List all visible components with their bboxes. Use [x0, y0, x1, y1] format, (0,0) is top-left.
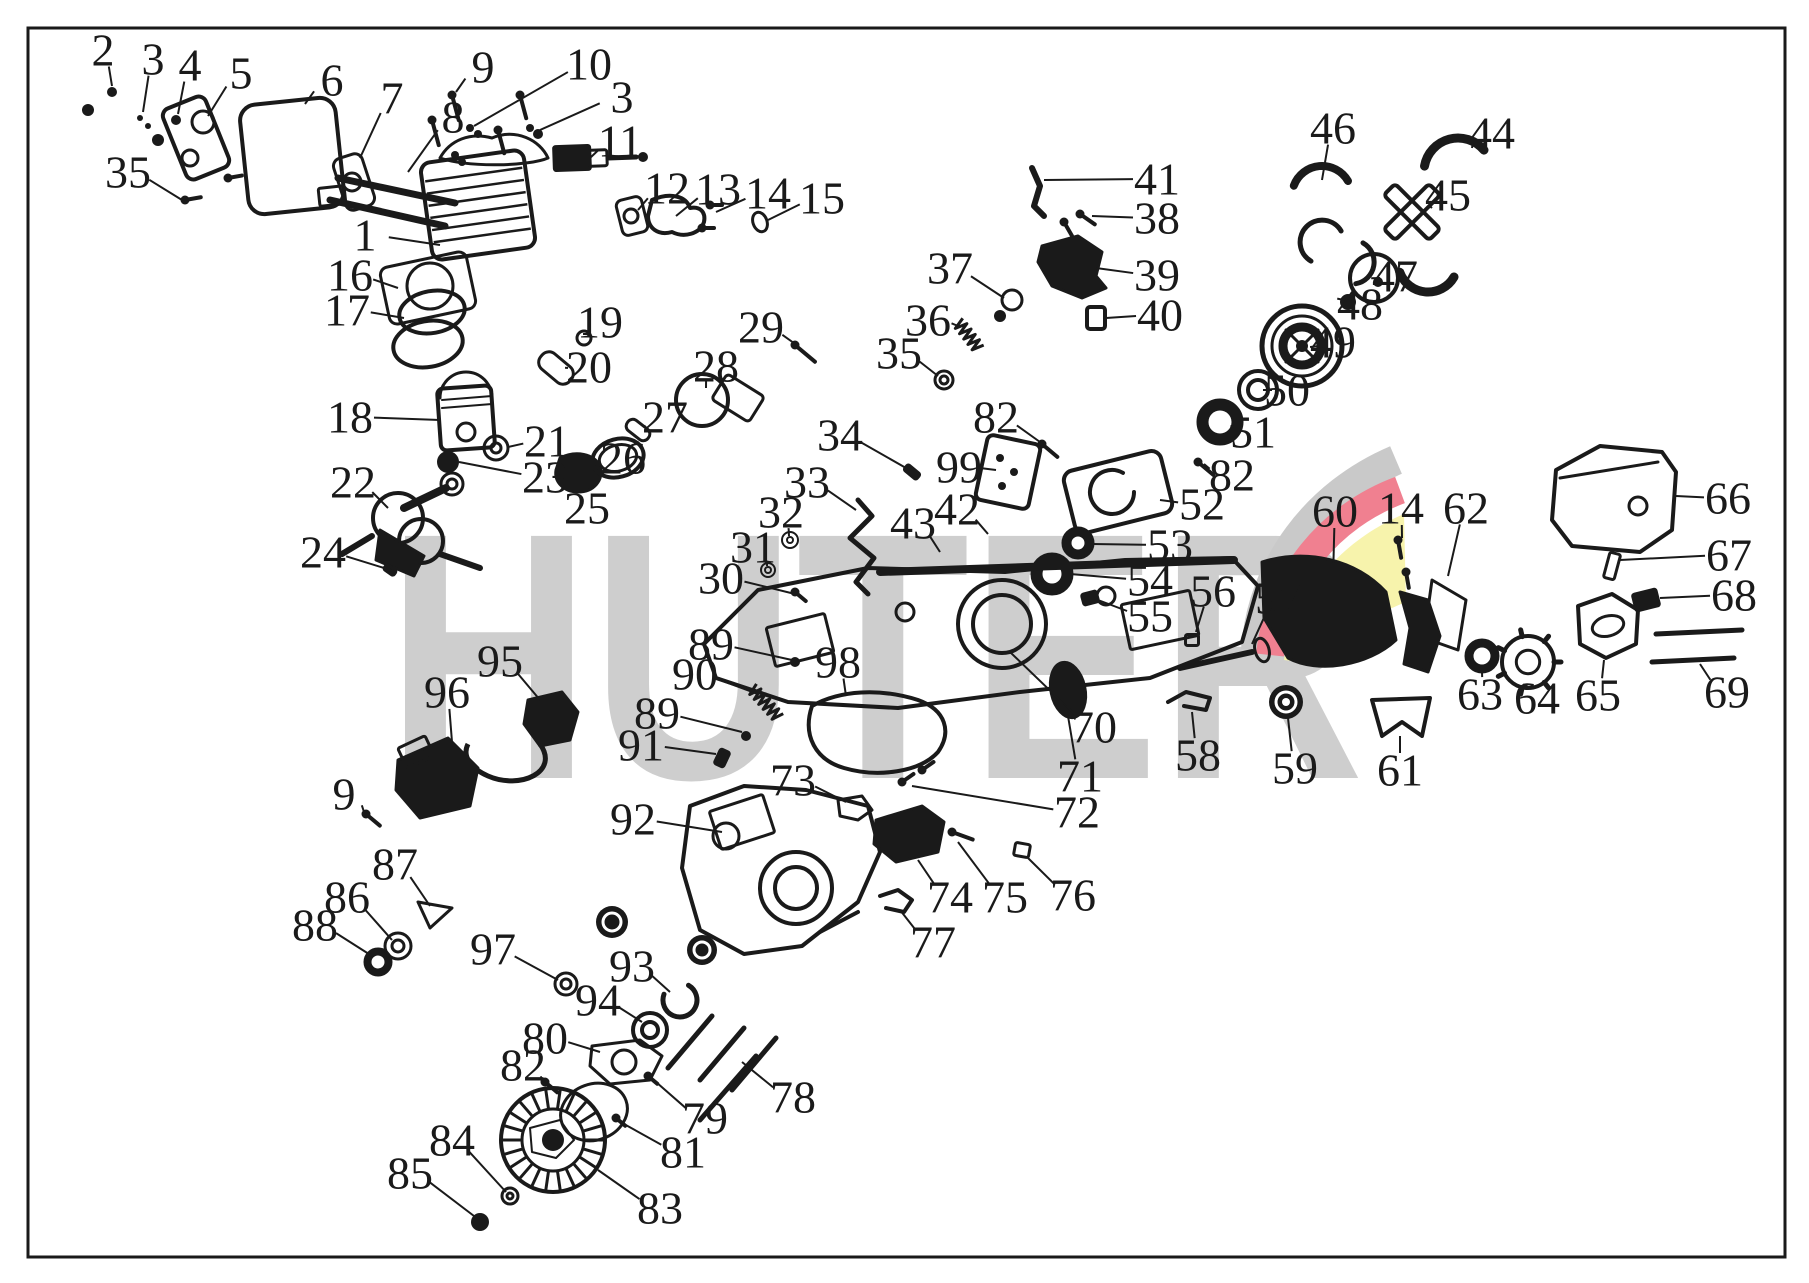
- grommet-35: [935, 371, 953, 389]
- washer-86-inner: [392, 940, 404, 952]
- leader-line-53: [1092, 544, 1146, 545]
- part-label-35: 35: [105, 147, 151, 198]
- screw-14d-head: [1402, 568, 1411, 577]
- part-label-29: 29: [738, 302, 784, 353]
- leader-line-9: [456, 79, 465, 92]
- part-label-64: 64: [1514, 673, 1560, 724]
- part-label-13: 13: [695, 164, 741, 215]
- flywheel-83-fins: [509, 1112, 526, 1123]
- cylinder-fin: [425, 168, 522, 182]
- leader-line-81: [624, 1124, 661, 1145]
- part-label-49: 49: [1310, 317, 1356, 368]
- sprocket-64-hub: [1516, 650, 1539, 673]
- part-label-74: 74: [927, 872, 973, 923]
- screw-81-head: [612, 1114, 621, 1123]
- part-label-15: 15: [799, 173, 845, 224]
- piston-18-groove2: [442, 404, 492, 408]
- part-label-10: 10: [566, 39, 612, 90]
- flywheel-83-fins: [566, 1169, 574, 1187]
- part-label-7: 7: [381, 73, 404, 124]
- part-label-61: 61: [1377, 745, 1423, 796]
- leader-line-21: [508, 444, 523, 447]
- part-label-34: 34: [817, 410, 863, 461]
- part-label-3: 3: [142, 34, 165, 85]
- leader-line-41: [1044, 179, 1133, 180]
- pin-30-head: [791, 588, 800, 597]
- part-label-14b: 14: [1378, 483, 1424, 534]
- part-label-11: 11: [598, 116, 642, 167]
- piston-18-groove1: [442, 396, 492, 400]
- leader-line-9b: [362, 805, 364, 812]
- part-label-19: 19: [577, 297, 623, 348]
- part-label-96: 96: [424, 667, 470, 718]
- sprocket-64-tooth: [1521, 630, 1523, 637]
- fuel-tank-66-seam: [1560, 462, 1658, 478]
- flywheel-83-fins: [584, 1149, 603, 1155]
- flywheel-83-hub: [542, 1129, 564, 1151]
- brake-lever-right: [1400, 592, 1440, 672]
- part-label-9b: 9: [333, 769, 356, 820]
- choke-lever-41: [1032, 168, 1044, 216]
- washer-extra1: [451, 151, 459, 159]
- part-label-41: 41: [1134, 154, 1180, 205]
- flywheel-83-fins: [519, 1164, 532, 1179]
- seal-88-inner: [372, 956, 384, 968]
- leader-line-38: [1092, 216, 1133, 217]
- leader-line-3b: [540, 103, 600, 130]
- throttle-39: [1038, 236, 1106, 298]
- part-label-56: 56: [1190, 566, 1236, 617]
- clip-77: [880, 890, 912, 912]
- bushing-40: [1087, 307, 1105, 329]
- bolt-69b: [1652, 658, 1734, 662]
- washer-63-inner: [1474, 648, 1490, 664]
- leader-line-68: [1660, 596, 1710, 598]
- flywheel-83-fins: [580, 1157, 597, 1168]
- screw-79-head: [644, 1072, 653, 1081]
- part-label-72: 72: [1054, 787, 1100, 838]
- muffler-cover-hole-bottom: [182, 150, 198, 166]
- parts-diagram: HUTER12334567899101112131414151617181920…: [0, 0, 1809, 1283]
- part-label-22: 22: [330, 457, 376, 508]
- washer-94-inner: [642, 1022, 658, 1038]
- part-label-91: 91: [618, 720, 664, 771]
- part-label-27: 27: [642, 392, 688, 443]
- bolt-78a: [668, 1016, 712, 1068]
- worm-59-hub: [1282, 698, 1290, 706]
- spring-36: [955, 318, 983, 350]
- part-label-20: 20: [566, 342, 612, 393]
- part-label-57: 57: [1255, 573, 1301, 624]
- part-label-77: 77: [910, 917, 956, 968]
- part-label-68: 68: [1711, 570, 1757, 621]
- bolt-78b: [700, 1028, 744, 1080]
- throttle-39-screw-head: [1060, 218, 1069, 227]
- part-label-9: 9: [472, 42, 495, 93]
- part-label-40: 40: [1137, 290, 1183, 341]
- flywheel-83-fins: [580, 1112, 597, 1123]
- part-label-85: 85: [387, 1148, 433, 1199]
- dot-5: [152, 134, 164, 146]
- flywheel-83-fins: [509, 1157, 526, 1168]
- part-label-63: 63: [1457, 669, 1503, 720]
- part-label-76: 76: [1050, 870, 1096, 921]
- part-label-73: 73: [770, 755, 816, 806]
- bearing-spool-a: [596, 906, 628, 938]
- part-label-24: 24: [300, 527, 346, 578]
- cylinder-fin: [430, 204, 527, 218]
- part-label-92: 92: [610, 794, 656, 845]
- leader-line-35: [149, 180, 182, 200]
- flywheel-83-fins: [546, 1089, 549, 1109]
- leader-line-37: [971, 276, 1004, 298]
- part-label-75: 75: [982, 872, 1028, 923]
- part-label-70: 70: [1071, 702, 1117, 753]
- clutch-shoe-46a: [1294, 166, 1348, 186]
- part-label-97: 97: [470, 924, 516, 975]
- washer-94: [633, 1013, 667, 1047]
- cylinder-fin: [434, 229, 531, 243]
- part-label-88: 88: [292, 900, 338, 951]
- pump-case-92-bore: [760, 852, 832, 924]
- part-label-62: 62: [1443, 483, 1489, 534]
- clutch-clip-46b: [1300, 220, 1341, 261]
- screw-82b-head: [1194, 458, 1203, 467]
- washer-10b: [474, 130, 482, 138]
- grommet-35-inner: [940, 376, 948, 384]
- bolt-69a: [1656, 630, 1742, 634]
- bar-plate-99-h2: [1010, 468, 1018, 476]
- nut-84-inner: [507, 1193, 513, 1199]
- flywheel-83-fins: [519, 1101, 532, 1116]
- part-label-58: 58: [1175, 730, 1221, 781]
- part-label-28: 28: [693, 341, 739, 392]
- leader-line-7: [360, 113, 381, 158]
- dot-2: [107, 87, 117, 97]
- pump-case-92-bore-inner: [775, 867, 817, 909]
- seal-97: [555, 973, 577, 995]
- flywheel-83-fins: [546, 1172, 549, 1192]
- exploded-view-svg: HUTER12334567899101112131414151617181920…: [0, 0, 1809, 1283]
- leader-line-39: [1096, 268, 1133, 273]
- dot-4: [171, 115, 181, 125]
- link-37-ball: [1002, 290, 1022, 310]
- muffler-cover: [160, 94, 231, 182]
- leader-line-18: [374, 418, 440, 420]
- part-label-94: 94: [575, 975, 621, 1026]
- part-label-2: 2: [92, 25, 115, 76]
- bar-plate-99-h3: [998, 482, 1006, 490]
- washer-53-inner: [1072, 537, 1084, 549]
- leader-line-35b: [920, 362, 938, 376]
- part-label-98: 98: [815, 637, 861, 688]
- screw-38-head: [1076, 210, 1085, 219]
- part-label-60: 60: [1312, 486, 1358, 537]
- part-label-23: 23: [522, 452, 568, 503]
- part-label-46: 46: [1310, 103, 1356, 154]
- part-label-82c: 82: [500, 1040, 546, 1091]
- seal-97-inner: [561, 979, 571, 989]
- dot-3a: [137, 115, 143, 121]
- cover-65: [1578, 594, 1638, 658]
- part-label-12: 12: [644, 163, 690, 214]
- part-label-14: 14: [745, 168, 791, 219]
- part-label-55: 55: [1127, 591, 1173, 642]
- flywheel-83-fins: [574, 1101, 587, 1116]
- part-label-36: 36: [905, 295, 951, 346]
- part-label-99: 99: [936, 442, 982, 493]
- part-label-26: 26: [600, 433, 646, 484]
- leader-line-97: [515, 956, 558, 980]
- spacer-23: [437, 451, 459, 473]
- leader-line-67: [1620, 556, 1705, 560]
- part-label-8: 8: [442, 92, 465, 143]
- fuel-tank-66-cap: [1629, 497, 1647, 515]
- pawl-plate-80-hole: [612, 1050, 636, 1074]
- part-label-65: 65: [1575, 670, 1621, 721]
- part-label-37: 37: [927, 243, 973, 294]
- part-label-17: 17: [324, 285, 370, 336]
- flywheel-83-fins: [531, 1169, 539, 1187]
- screw-9c-head: [428, 116, 437, 125]
- part-label-90: 90: [672, 649, 718, 700]
- flywheel-83-fins: [574, 1164, 587, 1179]
- leader-line-88: [336, 933, 372, 956]
- part-label-69: 69: [1704, 667, 1750, 718]
- part-label-18: 18: [327, 392, 373, 443]
- part-label-82a: 82: [973, 392, 1019, 443]
- flywheel-83-fins: [503, 1125, 522, 1131]
- leader-line-16: [373, 279, 398, 288]
- cover-65-opening: [1590, 612, 1626, 640]
- link-37-end: [994, 310, 1006, 322]
- washer-3f: [526, 124, 534, 132]
- part-label-87: 87: [372, 839, 418, 890]
- bearing-spool-b: [687, 935, 717, 965]
- washer-extra2: [458, 158, 466, 166]
- sprocket-64-tooth: [1498, 648, 1504, 651]
- washer-3g: [533, 129, 543, 139]
- muffler-screw-b-head: [224, 174, 233, 183]
- gasket-16-hole: [407, 263, 453, 309]
- part-label-95: 95: [477, 636, 523, 687]
- screw-72a-head: [898, 778, 907, 787]
- flywheel-83-fins: [531, 1093, 539, 1111]
- plate-61: [1372, 698, 1430, 736]
- part-label-83: 83: [637, 1183, 683, 1234]
- part-label-78: 78: [770, 1072, 816, 1123]
- screw-75-head: [948, 828, 957, 837]
- flywheel-83-fins: [558, 1172, 561, 1192]
- part-label-25: 25: [564, 483, 610, 534]
- part-label-33: 33: [784, 457, 830, 508]
- crank-shaft-left: [342, 536, 372, 554]
- leader-line-85: [430, 1182, 474, 1216]
- washer-10a: [466, 124, 474, 132]
- part-label-43: 43: [890, 498, 936, 549]
- part-label-6: 6: [321, 55, 344, 106]
- part-label-81: 81: [660, 1127, 706, 1178]
- screw-14e-head: [698, 224, 707, 233]
- needle-bearing-21-inner: [491, 443, 501, 453]
- ball-89a: [790, 657, 800, 667]
- flywheel-83-fins: [584, 1125, 603, 1131]
- dot-3c: [145, 123, 151, 129]
- sprocket-64-tooth: [1544, 636, 1548, 641]
- leader-line-83: [598, 1170, 640, 1199]
- flywheel-83-fins: [503, 1149, 522, 1155]
- seal-51-inner: [1209, 411, 1231, 433]
- part-label-84: 84: [429, 1115, 475, 1166]
- part-label-5: 5: [230, 48, 253, 99]
- leader-line-40: [1106, 316, 1136, 318]
- cylinder-fin: [427, 180, 524, 194]
- part-label-82b: 82: [1209, 450, 1255, 501]
- muffler-cover-hole-top: [192, 111, 214, 133]
- spark-plug-body: [554, 145, 591, 170]
- fuel-filter-67: [1603, 552, 1620, 580]
- bar-plate-99-h1: [996, 454, 1004, 462]
- piston-18-pinhole: [457, 423, 475, 441]
- screw-3e-head: [494, 126, 503, 135]
- cylinder-fins: [425, 168, 531, 242]
- part-label-44: 44: [1469, 108, 1515, 159]
- part-label-4: 4: [179, 40, 202, 91]
- dot-2b: [82, 104, 94, 116]
- ball-89b: [741, 731, 751, 741]
- part-label-45: 45: [1425, 170, 1471, 221]
- gasket-12-hole: [624, 209, 638, 223]
- bracket-87: [418, 902, 452, 928]
- leader-line-66: [1676, 496, 1704, 497]
- leader-line-29: [782, 335, 798, 346]
- part-label-66: 66: [1705, 473, 1751, 524]
- part-label-59: 59: [1272, 743, 1318, 794]
- leader-line-5: [208, 86, 226, 116]
